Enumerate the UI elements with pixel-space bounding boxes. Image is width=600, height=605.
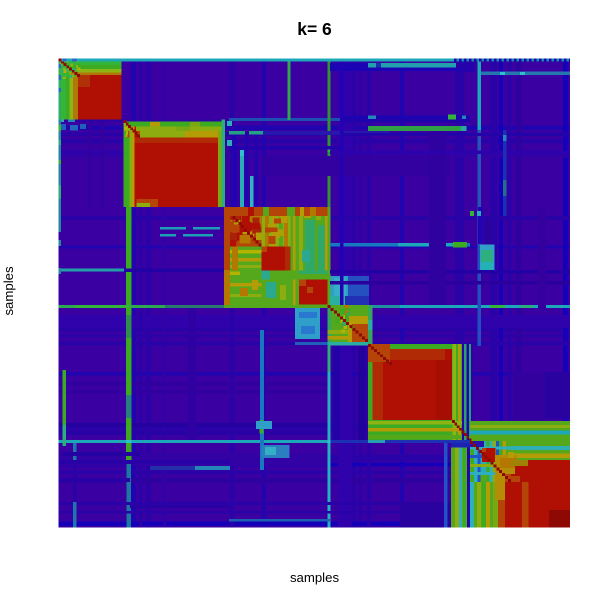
svg-text:samples: samples (1, 266, 16, 316)
svg-text:samples: samples (290, 570, 340, 585)
svg-text:k= 6: k= 6 (297, 19, 332, 39)
